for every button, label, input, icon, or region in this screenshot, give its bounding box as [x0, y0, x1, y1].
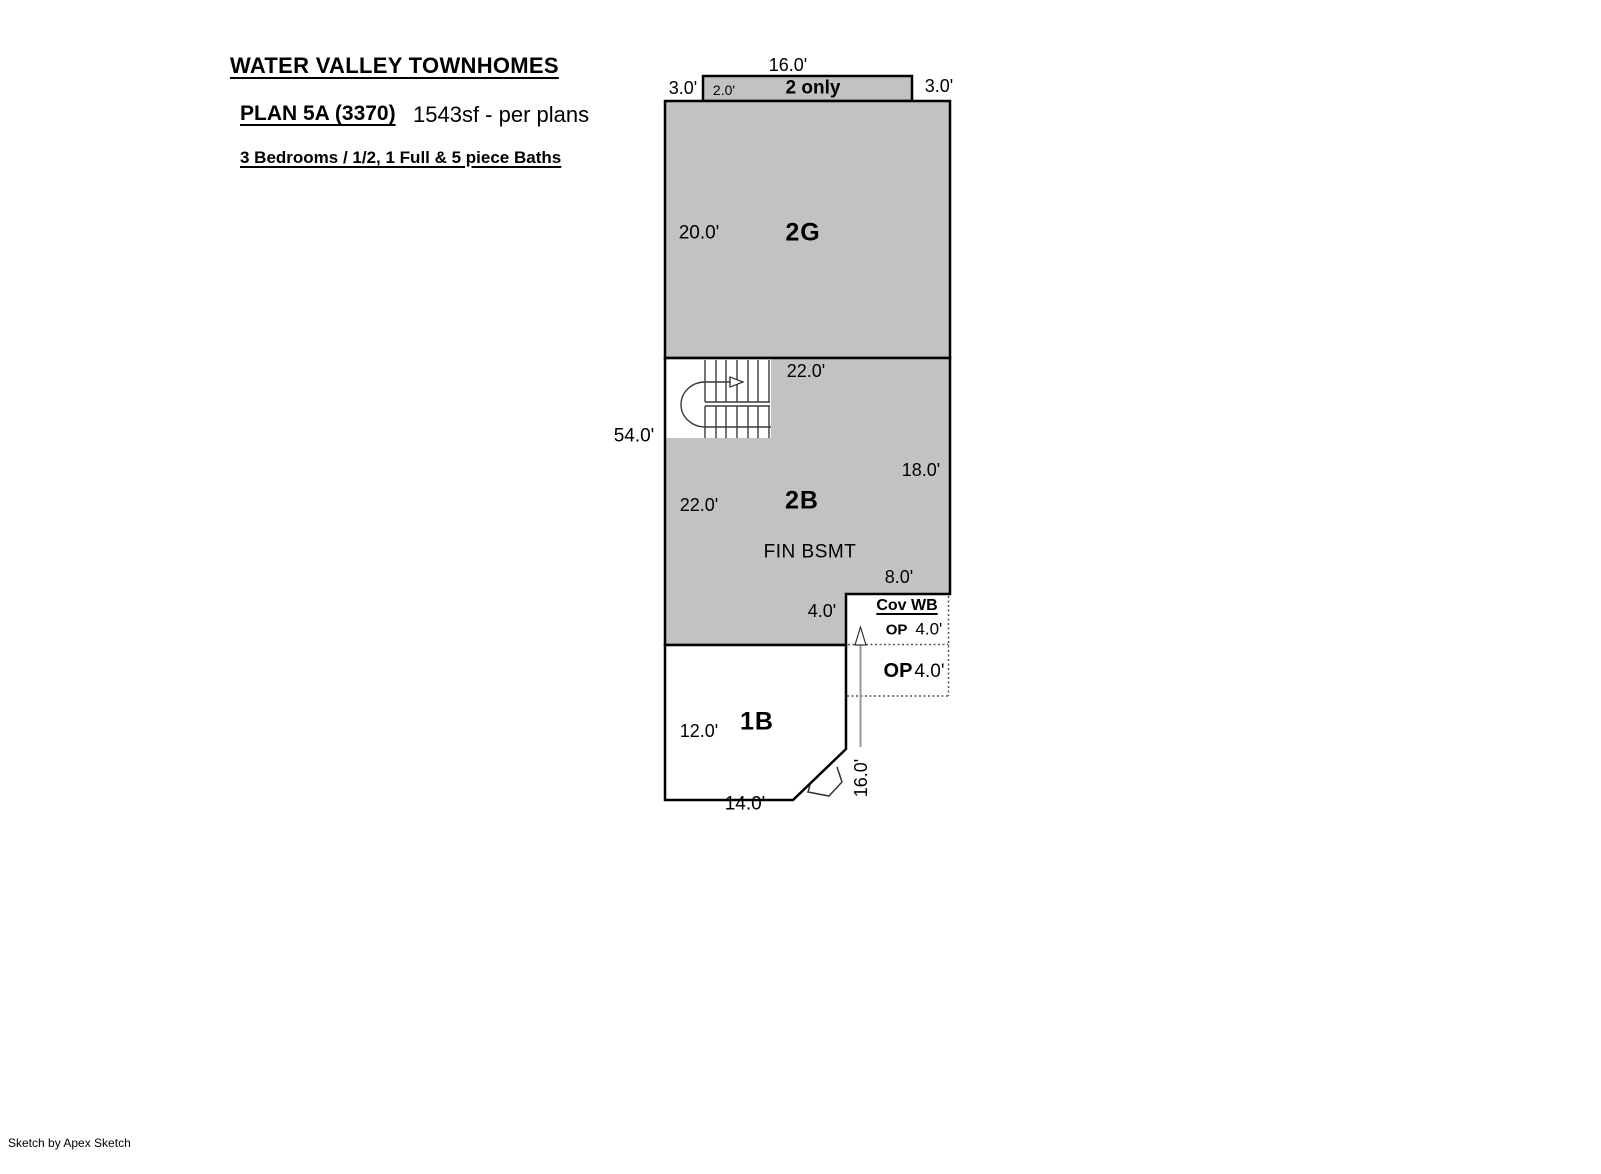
stair-width-dim: 22.0' — [787, 362, 825, 380]
notch-height-dim: 4.0' — [808, 602, 836, 620]
covwb-label: Cov WB — [876, 598, 937, 614]
garage-label: 2G — [785, 221, 820, 246]
strip-width-dim: 16.0' — [769, 56, 807, 74]
covwb-op-label: OP — [886, 623, 908, 638]
upper-right-dim: 18.0' — [902, 461, 940, 479]
floorplan-sketch-page: WATER VALLEY TOWNHOMES PLAN 5A (3370) 15… — [0, 0, 1601, 1174]
strip-right-dim: 3.0' — [925, 77, 953, 95]
covwb-op-dim: OP 4.0' — [886, 621, 943, 638]
stairs-icon — [667, 360, 772, 439]
upper-label: 2B — [785, 489, 819, 514]
floorplan-drawing — [0, 0, 1601, 1174]
lower-height-dim: 12.0' — [680, 722, 718, 740]
strip-label: 2 only — [786, 79, 841, 98]
lower-label: 1B — [740, 710, 774, 735]
op-depth: 4.0' — [914, 662, 944, 681]
strip-depth-dim: 2.0' — [713, 83, 735, 97]
covwb-op-depth: 4.0' — [915, 621, 942, 638]
upper-left-dim: 22.0' — [680, 496, 718, 514]
lower-width-dim: 14.0' — [725, 795, 766, 814]
op-dim: OP 4.0' — [884, 661, 945, 681]
finished-basement-note: FIN BSMT — [764, 543, 857, 562]
apex-sketch-credit: Sketch by Apex Sketch — [8, 1136, 131, 1150]
overall-height-dim: 54.0' — [614, 427, 655, 446]
notch-width-dim: 8.0' — [885, 568, 913, 586]
op-label: OP — [884, 661, 913, 681]
porch-height-dim: 16.0' — [852, 759, 870, 797]
strip-left-dim: 3.0' — [669, 79, 697, 97]
garage-height-dim: 20.0' — [679, 224, 720, 243]
